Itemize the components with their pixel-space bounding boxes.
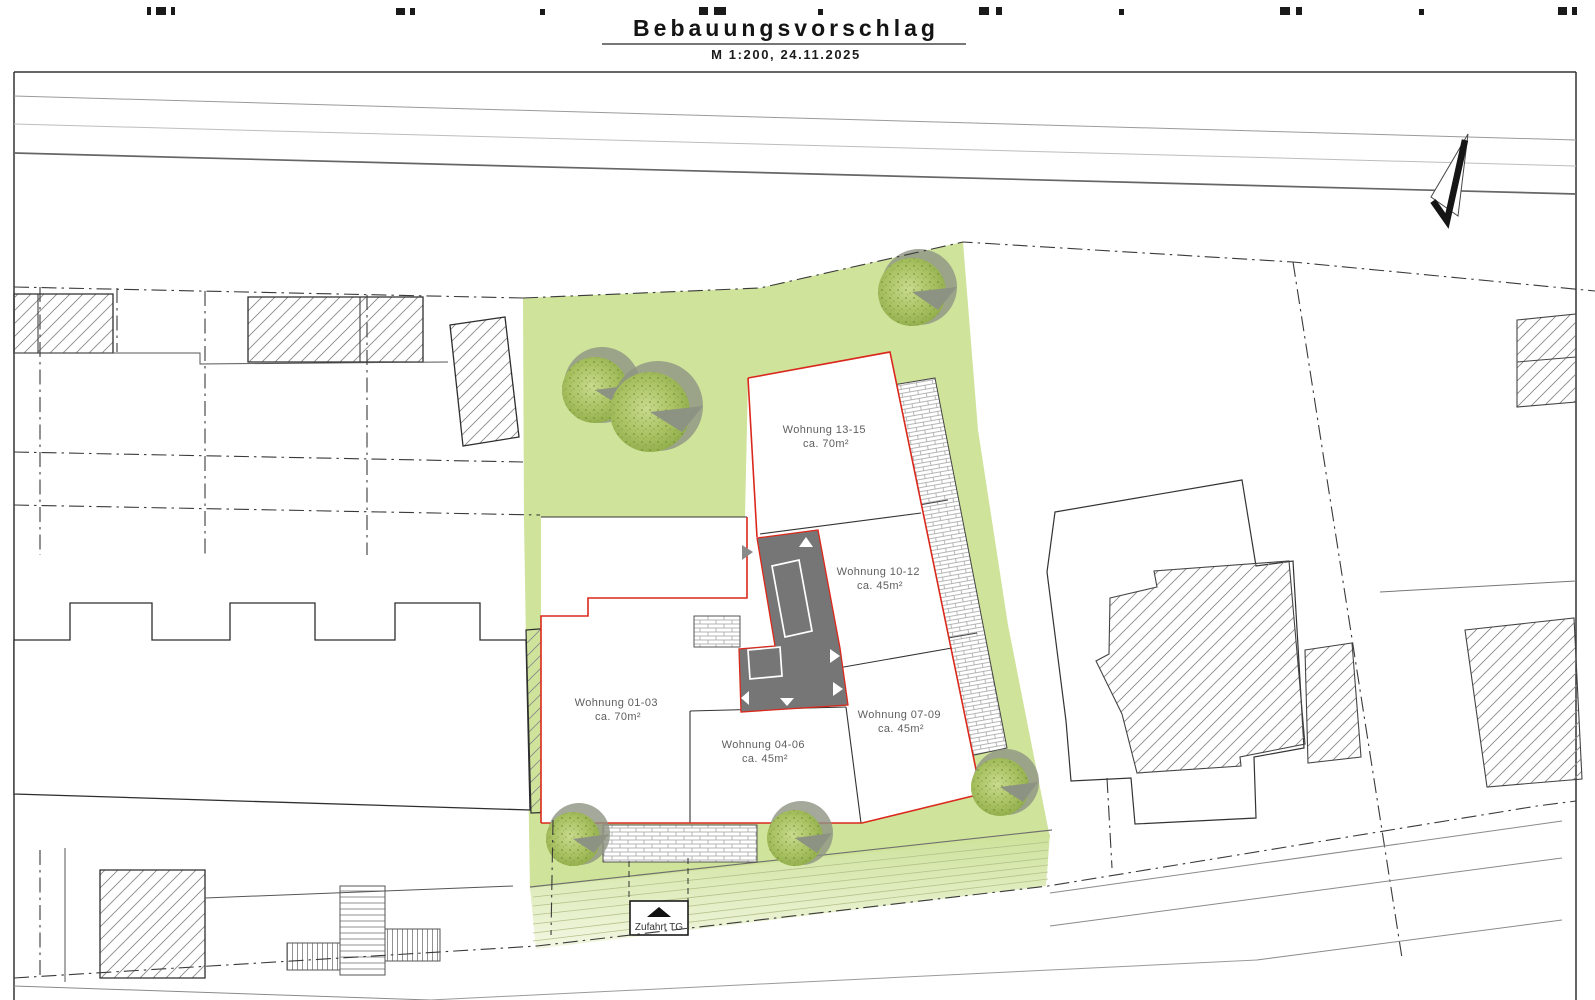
paving-terrace-south <box>603 825 757 862</box>
plan-scale-date: M 1:200, 24.11.2025 <box>711 47 861 62</box>
existing-row-houses <box>14 603 530 810</box>
site-plan-page: Bebauungsvorschlag M 1:200, 24.11.2025 <box>0 0 1595 1000</box>
paving-patch-entry <box>694 616 740 647</box>
neighbor-building-northeast <box>1517 314 1576 407</box>
site-plan-drawing: Bebauungsvorschlag M 1:200, 24.11.2025 <box>0 0 1595 1000</box>
page-title: Bebauungsvorschlag <box>633 15 939 41</box>
neighbor-building-wing <box>1305 643 1361 763</box>
